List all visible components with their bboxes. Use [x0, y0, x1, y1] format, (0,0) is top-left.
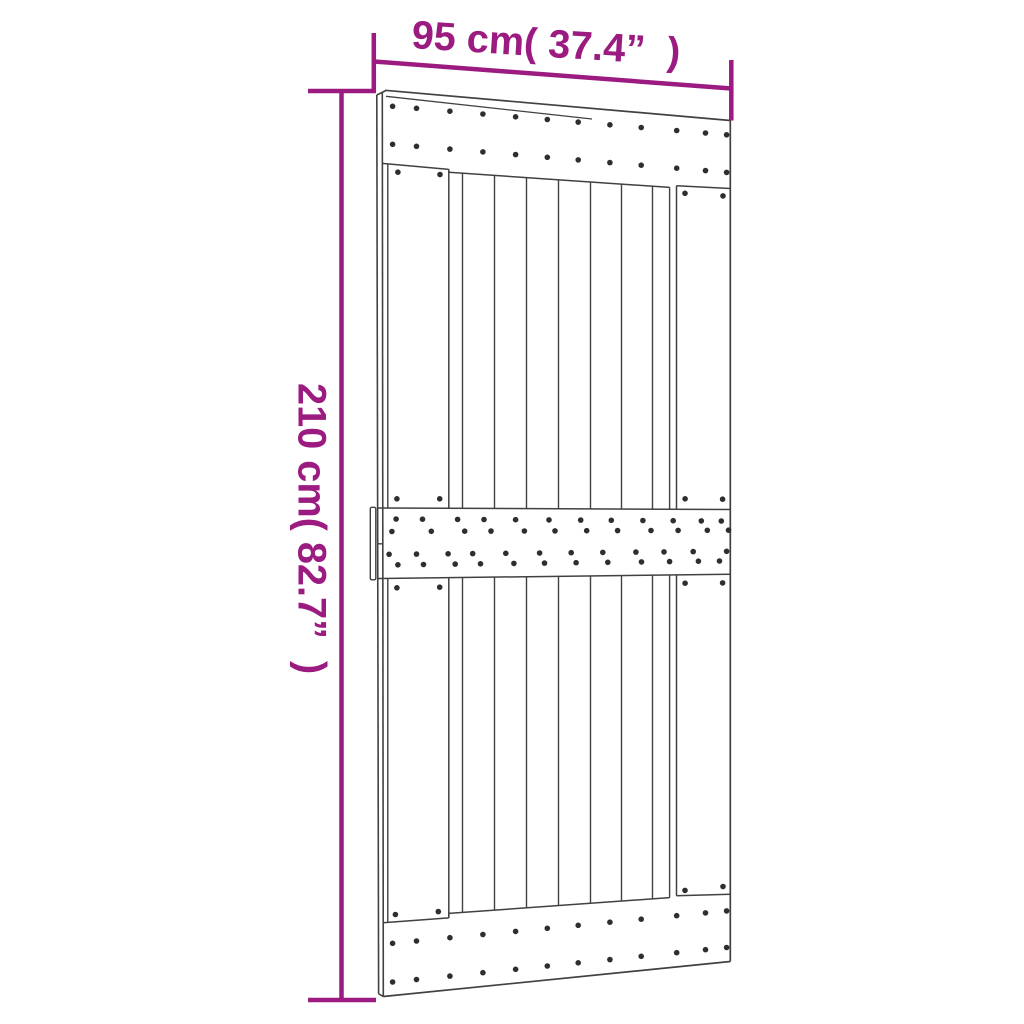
svg-text:210 cm( 82.7” ): 210 cm( 82.7” ) — [290, 383, 334, 674]
